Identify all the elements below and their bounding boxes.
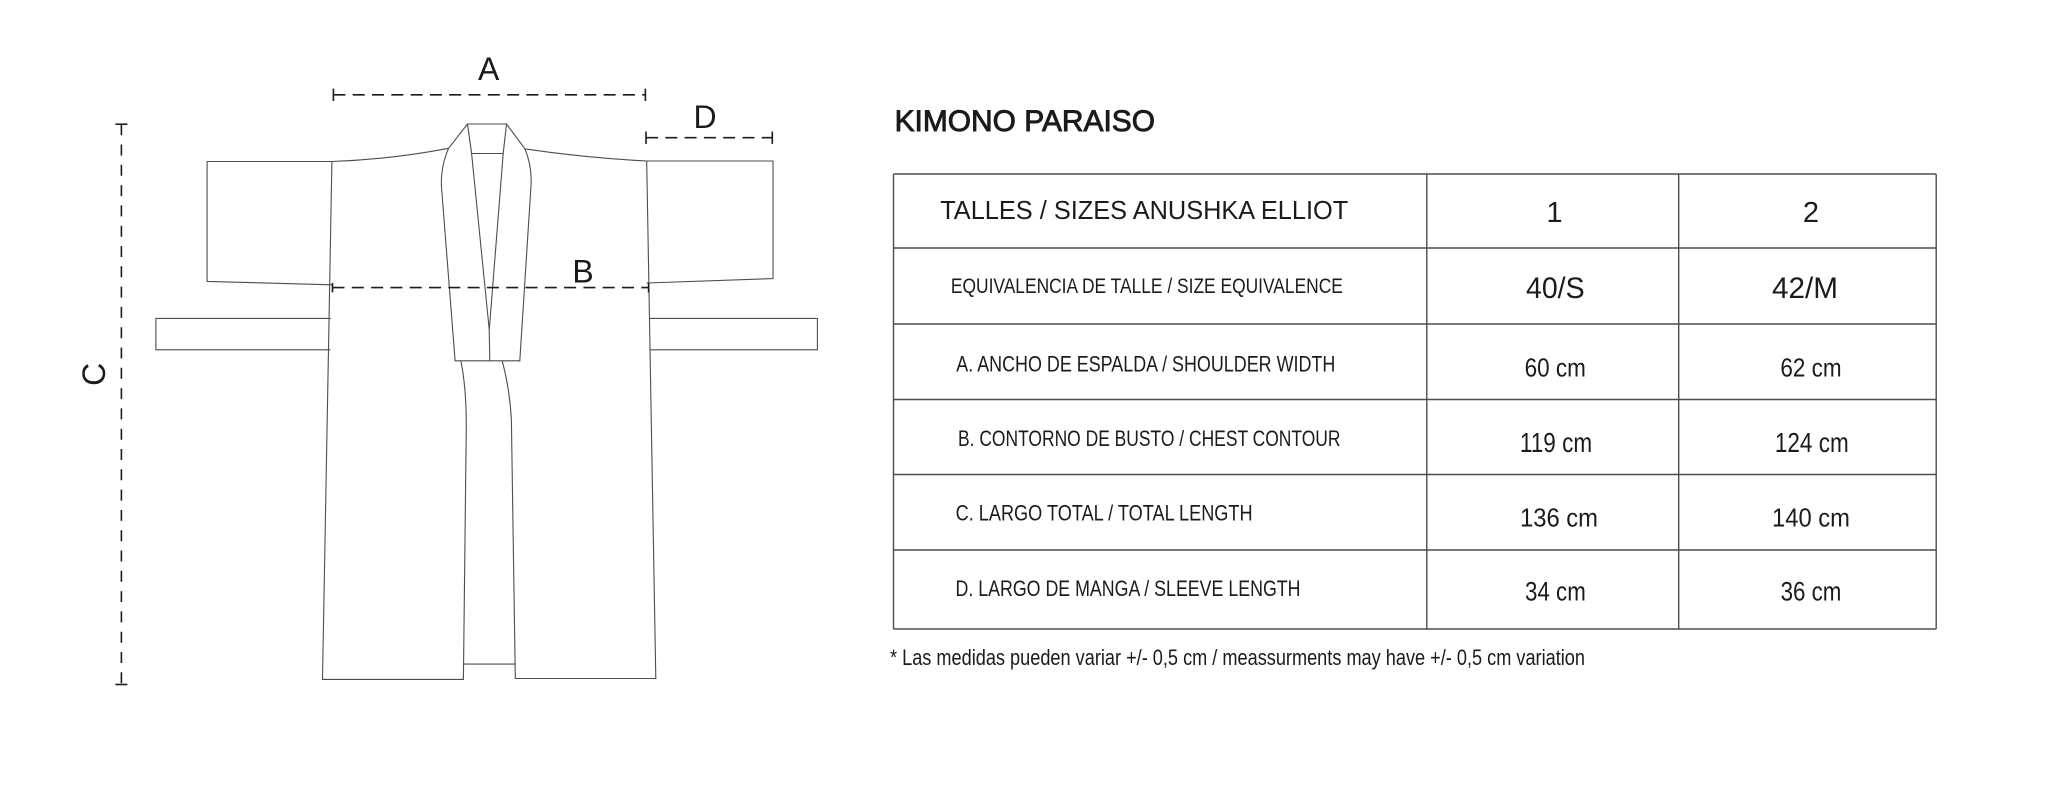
svg-text:B. CONTORNO DE BUSTO / CHEST C: B. CONTORNO DE BUSTO / CHEST CONTOUR	[958, 426, 1341, 451]
svg-text:D. LARGO DE MANGA / SLEEVE LE: D. LARGO DE MANGA / SLEEVE LENGTH	[956, 576, 1301, 601]
svg-text:34 cm: 34 cm	[1525, 576, 1586, 606]
svg-text:40/S: 40/S	[1526, 272, 1585, 305]
svg-text:140 cm: 140 cm	[1772, 502, 1850, 532]
svg-text:EQUIVALENCIA DE TALLE / SIZE E: EQUIVALENCIA DE TALLE / SIZE EQUIVALENCE	[951, 274, 1343, 298]
svg-text:119 cm: 119 cm	[1520, 427, 1592, 458]
svg-text:62 cm: 62 cm	[1780, 352, 1841, 382]
svg-text:36 cm: 36 cm	[1781, 576, 1842, 606]
svg-text:TALLES / SIZES ANUSHKA ELLIOT: TALLES / SIZES ANUSHKA ELLIOT	[940, 197, 1348, 225]
svg-text:136 cm: 136 cm	[1520, 502, 1598, 532]
svg-text:124 cm: 124 cm	[1775, 427, 1849, 458]
svg-text:2: 2	[1803, 197, 1819, 229]
svg-text:42/M: 42/M	[1772, 272, 1838, 305]
svg-text:D: D	[694, 99, 717, 135]
svg-text:C. LARGO TOTAL / TOTAL LENGTH: C. LARGO TOTAL / TOTAL LENGTH	[956, 501, 1253, 526]
svg-text:B: B	[572, 254, 593, 290]
svg-text:A. ANCHO DE ESPALDA / SHOULDER: A. ANCHO DE ESPALDA / SHOULDER WIDTH	[956, 351, 1335, 376]
svg-text:A: A	[478, 51, 500, 87]
svg-text:* Las medidas pueden variar +/: * Las medidas pueden variar +/- 0,5 cm /…	[890, 645, 1585, 670]
svg-text:KIMONO PARAISO: KIMONO PARAISO	[895, 105, 1155, 138]
svg-text:60 cm: 60 cm	[1525, 352, 1586, 382]
svg-text:C: C	[76, 363, 112, 386]
svg-text:1: 1	[1546, 197, 1562, 229]
